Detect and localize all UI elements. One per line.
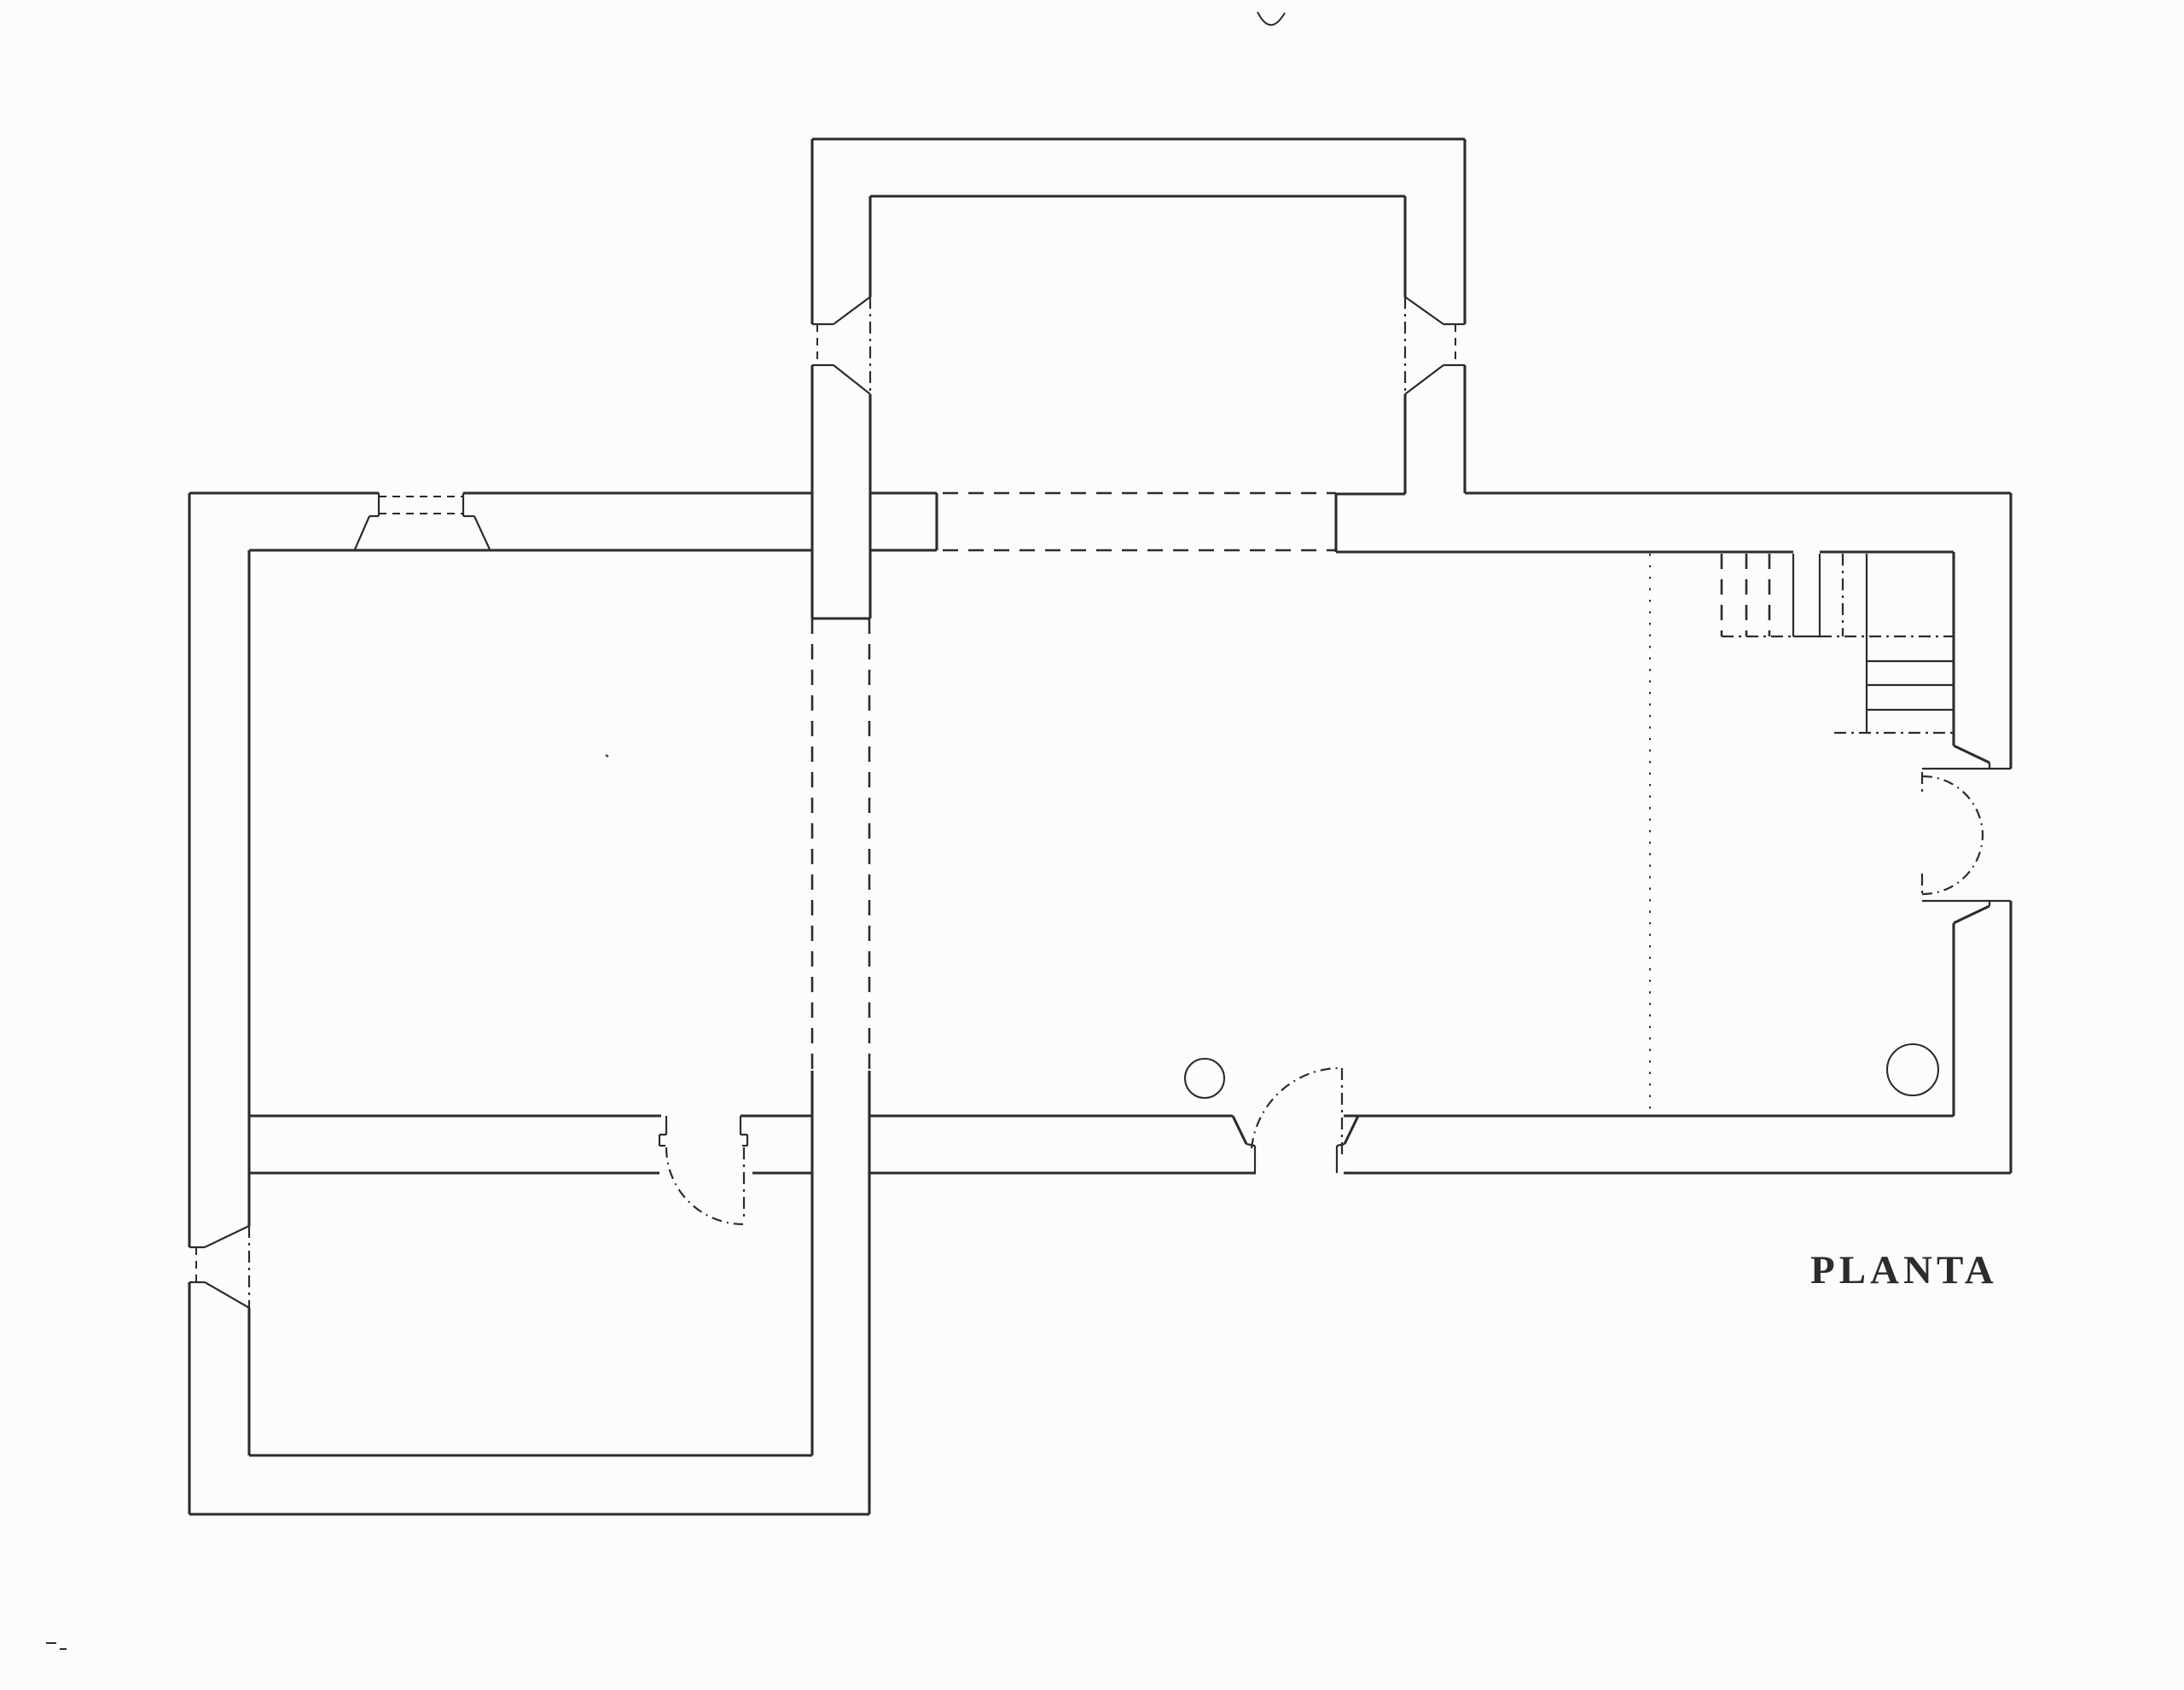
wall-detail-line [834,365,870,394]
wall-detail-line [1405,365,1443,394]
wall-detail-line [205,1282,249,1308]
wall-detail-line [474,516,490,549]
scan-artifacts-group [46,12,1285,1649]
wall-detail-line [355,516,369,549]
wall-detail-line [1337,1144,1345,1146]
wall-line [1954,906,1989,923]
wall-detail-line [1246,1144,1255,1146]
scanned-floor-plan-page: { "title": { "label": "PLANTA" }, "palet… [0,0,2184,1690]
drawing-title: PLANTA [1810,1247,1998,1293]
scan-artifact-mark [606,755,608,757]
wall-details-group [189,297,2011,1308]
overhead-beam-dashed-group [812,493,1769,1071]
wall-detail-line [1405,297,1443,324]
walls-group [189,139,2011,1514]
door-swing-arc [1922,834,1983,894]
door-leaf-and-sill-group [249,297,1954,1308]
column-circle [1887,1044,1938,1095]
columns-group [1185,1044,1938,1098]
column-circle [1185,1059,1224,1098]
door-swings-group [666,776,1983,1224]
window-glazing-group [196,324,1455,1282]
door-swing-arc [666,1147,743,1224]
door-swing-arc [1252,1068,1342,1148]
scan-artifact-mark [1258,12,1285,25]
wall-detail-line [205,1226,249,1247]
wall-line [1345,1116,1358,1144]
wall-detail-line [834,297,870,324]
wall-line [1233,1116,1246,1144]
floor-plan-drawing [0,0,2184,1690]
door-swing-arc [1922,776,1983,834]
wall-line [1954,746,1989,763]
drawing-sheet: PLANTA [0,0,2184,1690]
